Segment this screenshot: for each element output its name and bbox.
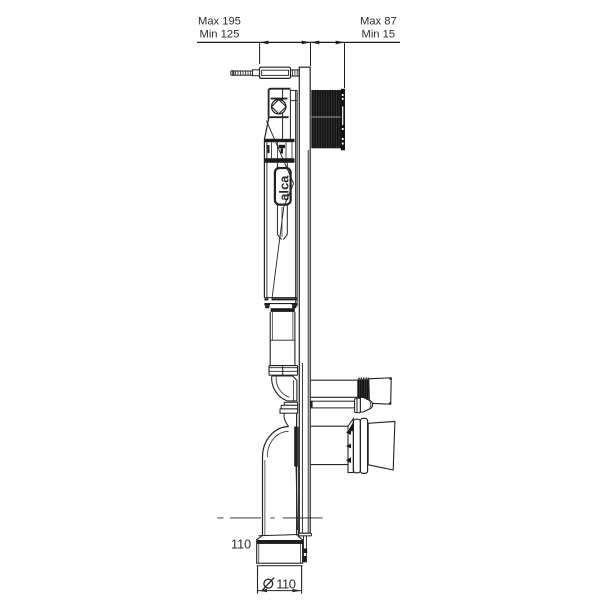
svg-text:110: 110 bbox=[276, 577, 296, 592]
svg-text:Max 195: Max 195 bbox=[198, 16, 241, 28]
svg-text:alca: alca bbox=[277, 175, 292, 201]
svg-text:Max 87: Max 87 bbox=[360, 16, 397, 28]
svg-text:110: 110 bbox=[231, 538, 251, 552]
svg-text:Min 125: Min 125 bbox=[200, 28, 240, 40]
svg-text:Min 15: Min 15 bbox=[362, 28, 396, 40]
